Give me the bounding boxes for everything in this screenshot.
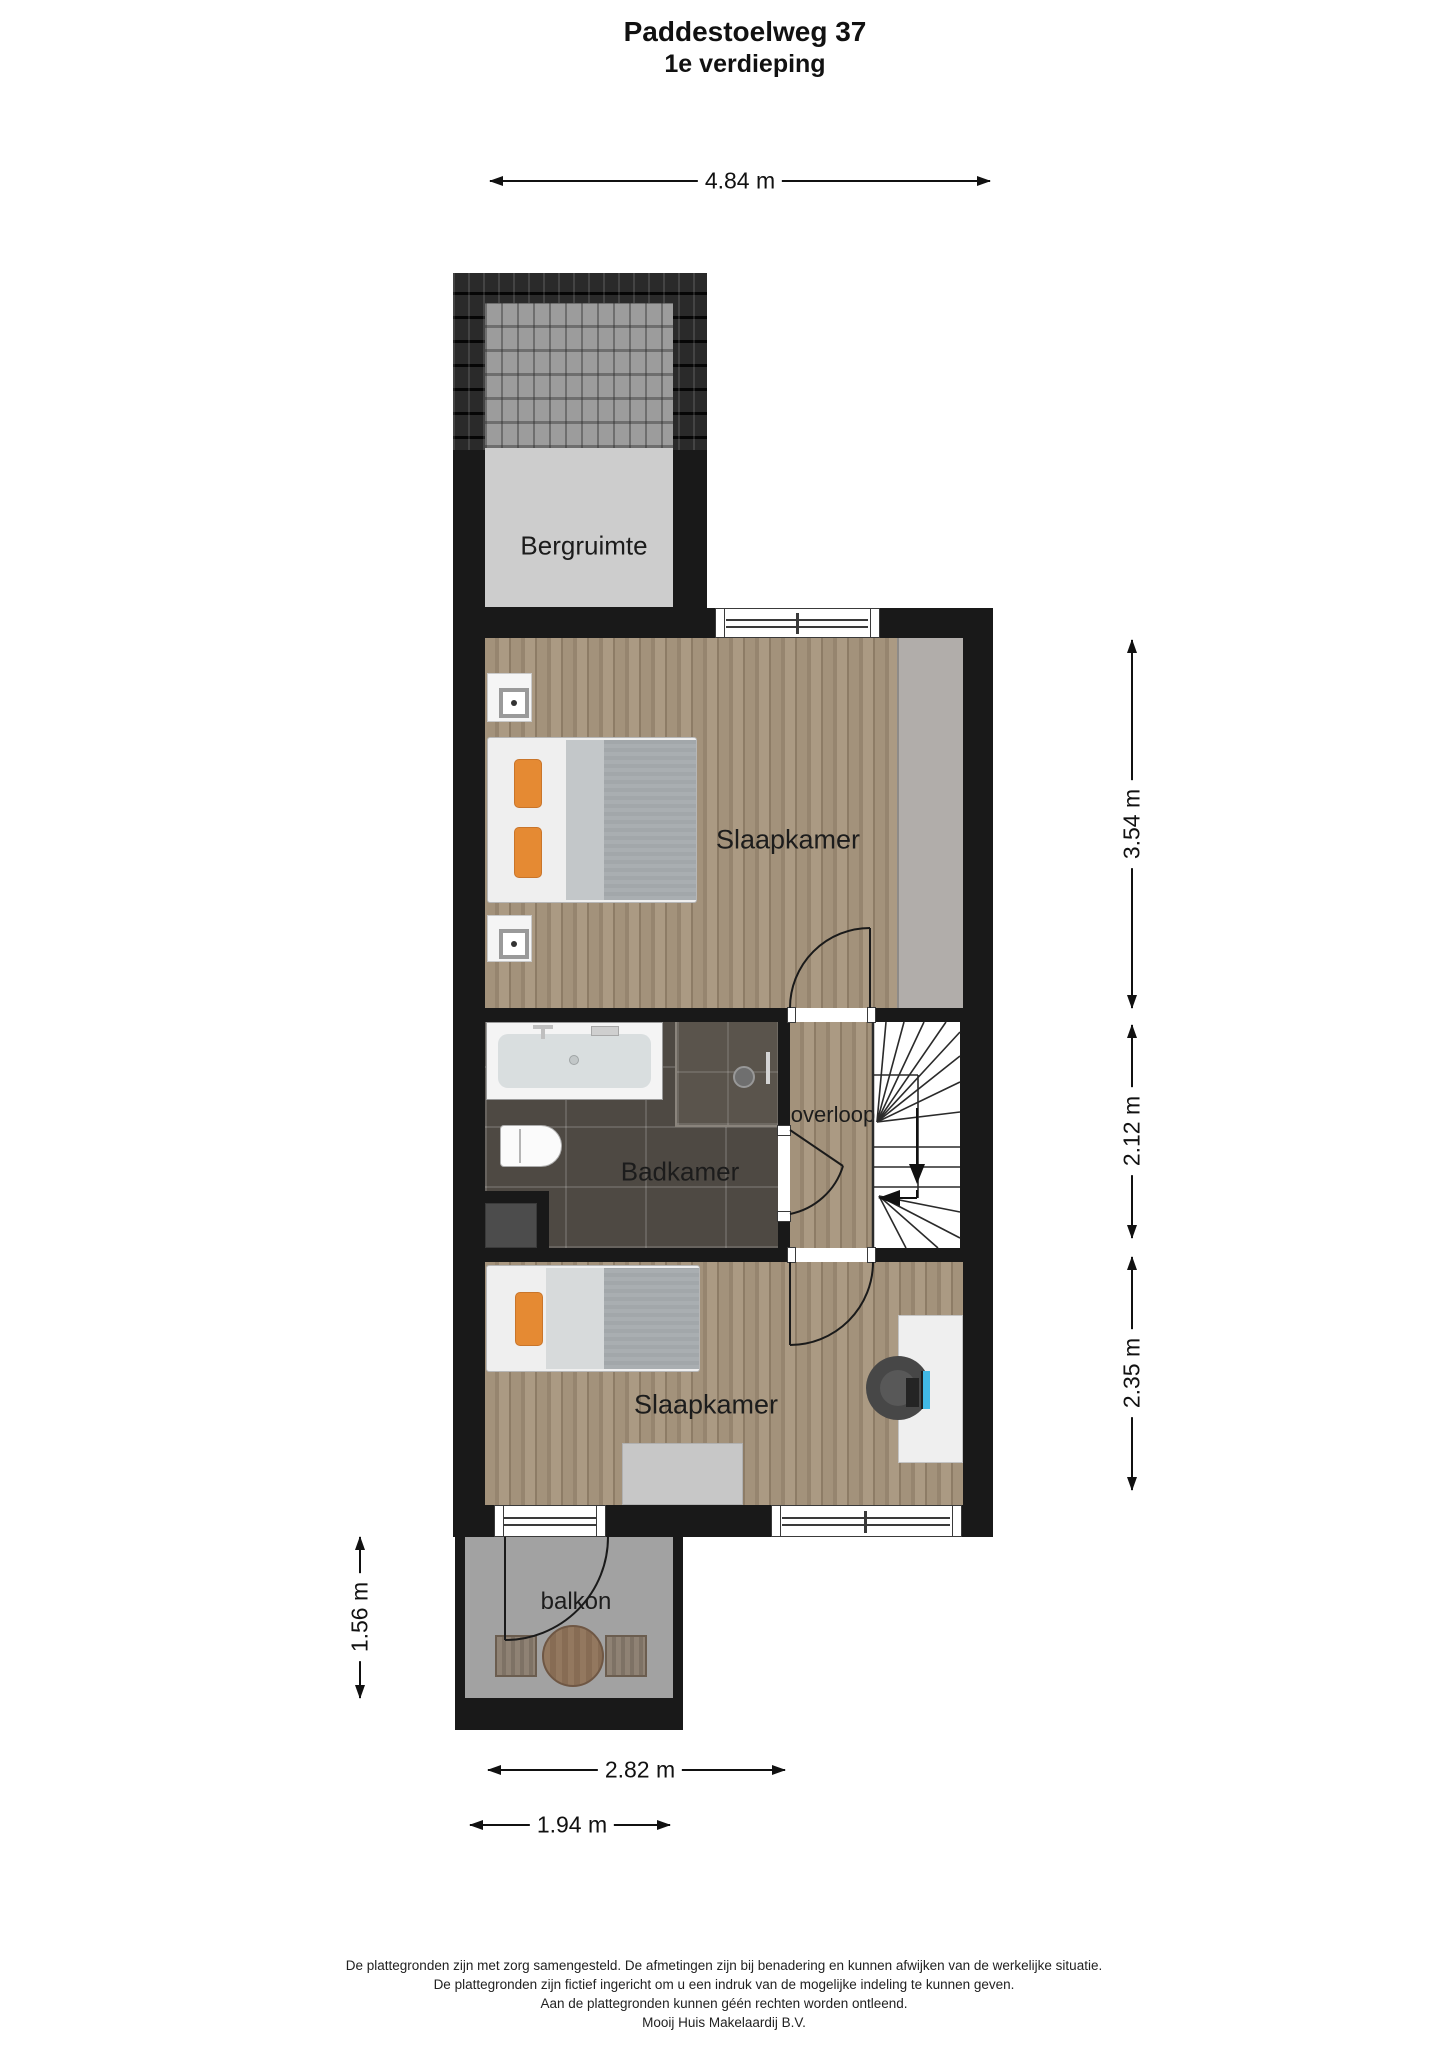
door-swing-bathroom xyxy=(790,1130,843,1214)
door-swing-bedroom-top xyxy=(790,928,870,1008)
dimension-lines xyxy=(360,181,1132,1825)
door-swing-balcony xyxy=(505,1537,608,1640)
dim-label-middle-depth: 2.12 m xyxy=(1118,1087,1147,1175)
footer-line-1: De plattegronden zijn met zorg samengest… xyxy=(0,1956,1448,1975)
stair-direction-arrow xyxy=(878,1108,925,1206)
footer-line-3: Aan de plattegronden kunnen géén rechten… xyxy=(0,1994,1448,2013)
dim-label-top-width: 4.84 m xyxy=(698,167,782,196)
footer-line-2: De plattegronden zijn fictief ingericht … xyxy=(0,1975,1448,1994)
dim-label-bedroom-bottom-depth: 2.35 m xyxy=(1118,1329,1147,1417)
footer-disclaimer: De plattegronden zijn met zorg samengest… xyxy=(0,1956,1448,2032)
dim-label-bedroom-top-depth: 3.54 m xyxy=(1118,780,1147,868)
floorplan-page: Paddestoelweg 37 1e verdieping Bergruimt… xyxy=(0,0,1448,2048)
dim-label-bottom-width: 2.82 m xyxy=(598,1756,682,1785)
door-swing-bedroom-bottom xyxy=(790,1262,873,1345)
dim-label-balcony-depth: 1.56 m xyxy=(346,1573,375,1661)
dim-label-balcony-width: 1.94 m xyxy=(530,1811,614,1840)
footer-line-4: Mooij Huis Makelaardij B.V. xyxy=(0,2013,1448,2032)
linework-overlay xyxy=(0,0,1448,2048)
